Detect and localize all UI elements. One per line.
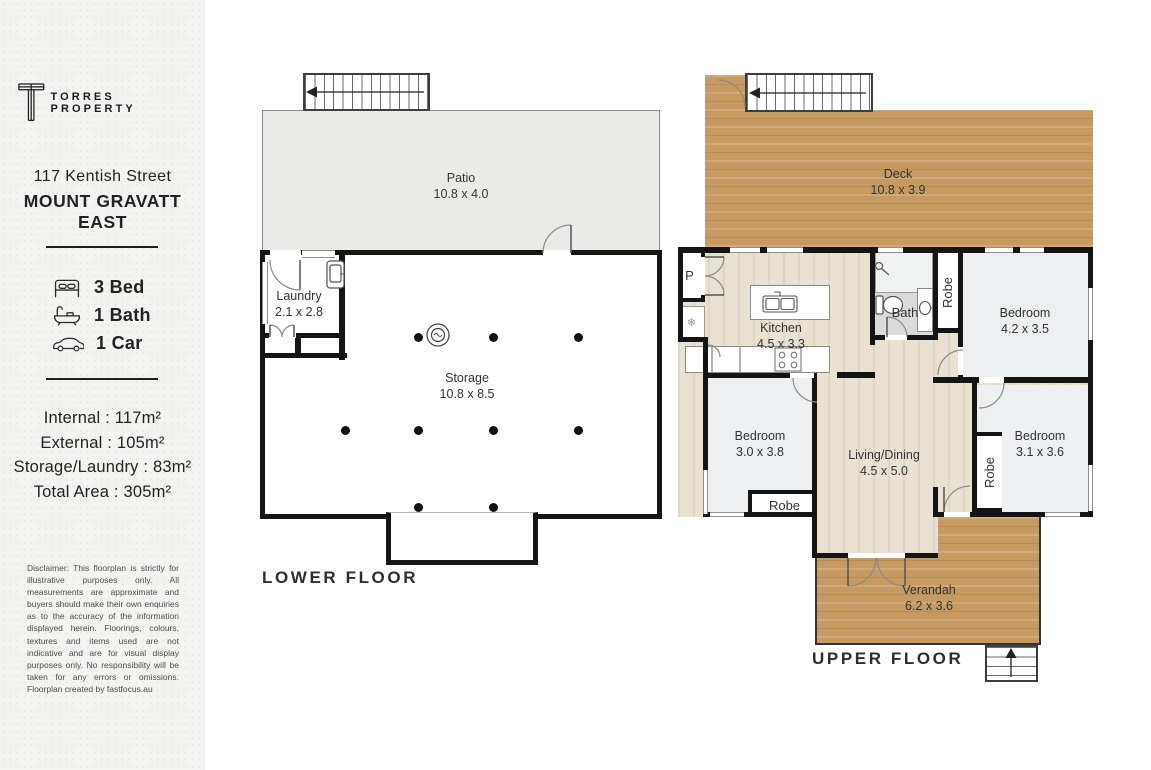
robe-label: Robe xyxy=(982,456,997,487)
floorplan-page: TORRES PROPERTY 117 Kentish Street MOUNT… xyxy=(0,0,1151,770)
wall xyxy=(339,253,345,360)
address-street: 117 Kentish Street xyxy=(0,168,205,186)
bedroom1-label: Bedroom 4.2 x 3.5 xyxy=(975,305,1075,337)
patio-label: Patio 10.8 x 4.0 xyxy=(411,170,511,202)
address-suburb: MOUNT GRAVATT xyxy=(0,191,205,212)
wall xyxy=(678,247,683,342)
storage-entry-nook xyxy=(386,512,538,565)
window xyxy=(1045,512,1080,517)
area-internal: Internal : 117m² xyxy=(0,406,205,431)
laundry-label: Laundry 2.1 x 2.8 xyxy=(259,288,339,320)
window xyxy=(767,247,803,253)
wall xyxy=(837,372,875,378)
robe-label: Robe xyxy=(941,277,956,308)
verandah-label: Verandah 6.2 x 3.6 xyxy=(879,582,979,614)
wall xyxy=(972,380,977,517)
door-opening xyxy=(958,347,963,375)
divider xyxy=(46,246,158,248)
wall xyxy=(295,338,301,358)
post-dot xyxy=(489,426,498,435)
window xyxy=(710,512,744,517)
living-dining-label: Living/Dining 4.5 x 5.0 xyxy=(824,447,944,479)
kitchen-label: Kitchen 4.5 x 3.3 xyxy=(731,320,831,352)
snowflake-icon: ❄ xyxy=(687,316,696,329)
robe-label: Robe xyxy=(769,498,800,513)
storage-label: Storage 10.8 x 8.5 xyxy=(417,370,517,402)
property-address: 117 Kentish Street MOUNT GRAVATT EAST xyxy=(0,168,205,233)
door-opening xyxy=(269,333,296,338)
wall xyxy=(812,373,817,558)
door-opening xyxy=(944,512,970,517)
window xyxy=(1088,288,1093,340)
door-opening xyxy=(848,553,905,558)
feature-cars: 1 Car xyxy=(52,332,151,354)
upper-stairs xyxy=(745,73,873,112)
door-opening xyxy=(701,257,705,295)
feature-beds-label: 3 Bed xyxy=(94,277,145,298)
window xyxy=(1020,247,1044,253)
post-dot xyxy=(414,503,423,512)
wall xyxy=(933,377,1093,383)
address-suburb2: EAST xyxy=(0,212,205,233)
wall xyxy=(262,353,347,358)
bed-icon xyxy=(52,276,82,298)
feature-beds: 3 Bed xyxy=(52,276,151,298)
brand-name: TORRES PROPERTY xyxy=(51,91,198,115)
bath-icon xyxy=(52,304,82,326)
post-dot xyxy=(489,333,498,342)
window xyxy=(302,250,335,258)
lower-floor-title: LOWER FLOOR xyxy=(262,568,418,588)
door-opening xyxy=(270,250,301,258)
door-opening xyxy=(543,250,571,258)
window xyxy=(985,247,1013,253)
door-opening xyxy=(979,377,1004,383)
area-storage-laundry: Storage/Laundry : 83m² xyxy=(0,455,205,480)
area-summary: Internal : 117m² External : 105m² Storag… xyxy=(0,406,205,504)
bath-label: Bath xyxy=(880,305,930,321)
post-dot xyxy=(489,503,498,512)
torres-t-logo-icon xyxy=(18,81,45,125)
door-opening xyxy=(790,373,814,378)
divider xyxy=(46,378,158,380)
area-external: External : 105m² xyxy=(0,431,205,456)
deck-label: Deck 10.8 x 3.9 xyxy=(848,166,948,198)
post-dot xyxy=(574,333,583,342)
wall xyxy=(870,247,875,345)
door-opening xyxy=(885,335,907,340)
feature-baths: 1 Bath xyxy=(52,304,151,326)
post-dot xyxy=(414,333,423,342)
pantry-label: P xyxy=(685,268,694,283)
post-dot xyxy=(341,426,350,435)
window xyxy=(703,470,708,514)
window xyxy=(878,247,903,253)
bedroom2-label: Bedroom 3.0 x 3.8 xyxy=(710,428,810,460)
robe-top: Robe xyxy=(938,252,958,333)
kitchen-island xyxy=(750,285,830,320)
feature-cars-label: 1 Car xyxy=(96,333,143,354)
post-dot xyxy=(414,426,423,435)
lower-stairs xyxy=(303,73,430,111)
disclaimer-text: Disclaimer: This floorplan is strictly f… xyxy=(27,562,179,695)
brand-logo: TORRES PROPERTY xyxy=(18,80,198,126)
feature-baths-label: 1 Bath xyxy=(94,305,151,326)
car-icon xyxy=(52,333,84,353)
shower xyxy=(875,252,933,293)
window xyxy=(730,247,760,253)
area-total: Total Area : 305m² xyxy=(0,480,205,505)
window xyxy=(1088,465,1093,511)
sidebar: TORRES PROPERTY 117 Kentish Street MOUNT… xyxy=(0,0,205,770)
bedroom3-label: Bedroom 3.1 x 3.6 xyxy=(990,428,1090,460)
post-dot xyxy=(574,426,583,435)
wall xyxy=(933,247,938,340)
living-floor-extension xyxy=(813,515,938,558)
upper-floor-title: UPPER FLOOR xyxy=(812,649,963,669)
property-features: 3 Bed 1 Bath xyxy=(52,276,151,360)
entry-stairs xyxy=(985,645,1038,682)
